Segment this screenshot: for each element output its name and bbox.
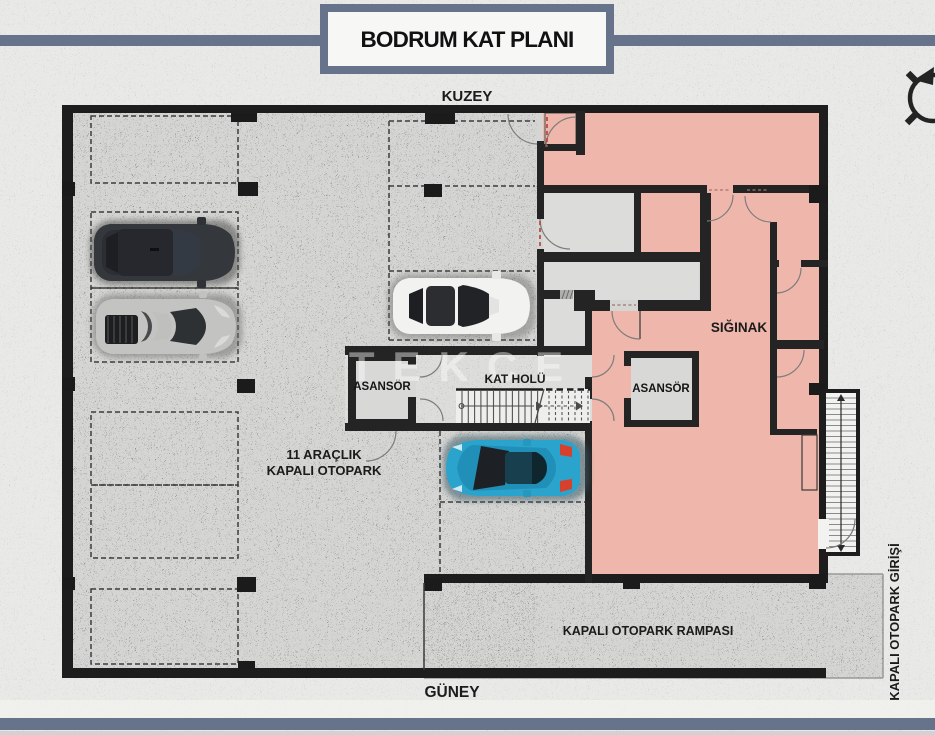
svg-text:TEKCE: TEKCE: [349, 343, 581, 390]
svg-text:ASANSÖR: ASANSÖR: [632, 382, 690, 395]
svg-text:KAT HOLÜ: KAT HOLÜ: [484, 371, 545, 386]
svg-text:11 ARAÇLIK: 11 ARAÇLIK: [286, 447, 362, 462]
svg-text:GÜNEY: GÜNEY: [424, 684, 480, 701]
svg-text:KAPALI OTOPARK GİRİŞİ: KAPALI OTOPARK GİRİŞİ: [887, 543, 902, 700]
svg-text:SIĞINAK: SIĞINAK: [711, 320, 768, 335]
svg-text:KAPALI OTOPARK RAMPASI: KAPALI OTOPARK RAMPASI: [563, 624, 734, 638]
svg-text:KAPALI OTOPARK: KAPALI OTOPARK: [267, 463, 382, 478]
svg-text:KUZEY: KUZEY: [442, 88, 493, 105]
svg-text:BODRUM KAT PLANI: BODRUM KAT PLANI: [360, 27, 573, 52]
